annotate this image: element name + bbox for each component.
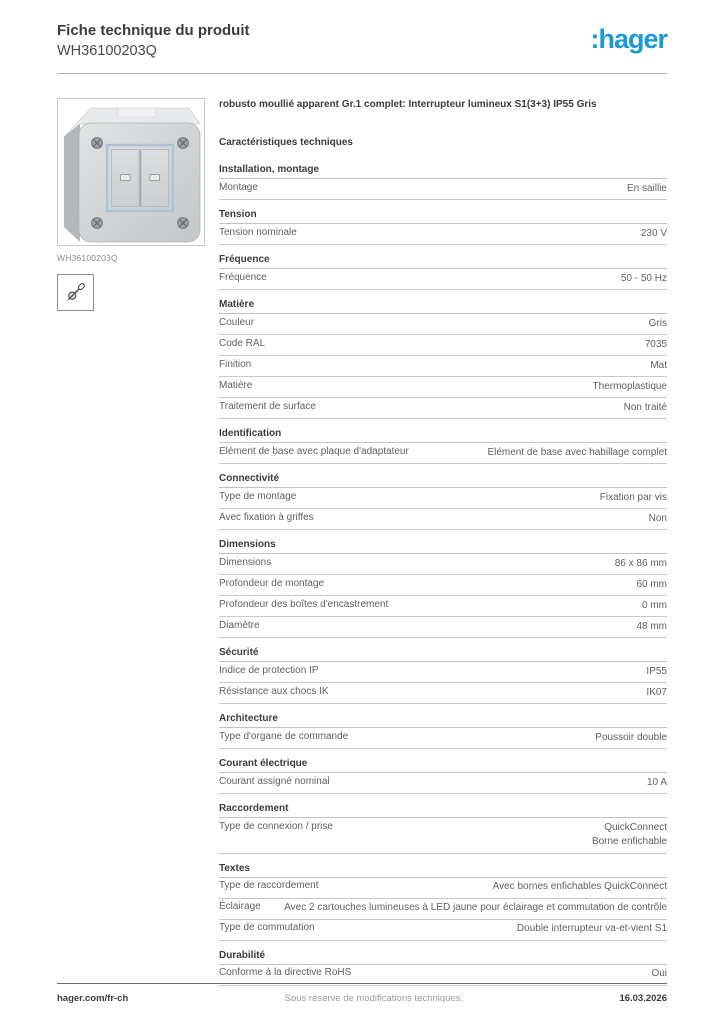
spec-row: Fréquence50 - 50 Hz: [219, 269, 667, 290]
spec-label: Résistance aux chocs IK: [219, 686, 341, 697]
spec-sections: Installation, montageMontageEn saillieTe…: [219, 164, 667, 986]
section-title: Textes: [219, 863, 667, 878]
specifications-column: robusto moullié apparent Gr.1 complet: I…: [219, 98, 667, 995]
section-title: Connectivité: [219, 473, 667, 488]
spec-row: MatièreThermoplastique: [219, 377, 667, 398]
spec-row: Profondeur de montage60 mm: [219, 575, 667, 596]
spec-row: Code RAL7035: [219, 335, 667, 356]
spec-value: IK07: [341, 686, 668, 701]
section-title: Courant électrique: [219, 758, 667, 773]
spec-row: Diamètre48 mm: [219, 617, 667, 638]
spec-row: Avec fixation à griffesNon: [219, 509, 667, 530]
spec-label: Elément de base avec plaque d'adaptateur: [219, 446, 421, 457]
spec-label: Montage: [219, 182, 270, 193]
spec-label: Type d'organe de commande: [219, 731, 360, 742]
spec-value: Poussoir double: [360, 731, 667, 746]
product-reference: WH36100203Q: [57, 43, 250, 59]
spec-row: Dimensions86 x 86 mm: [219, 554, 667, 575]
spec-label: Traitement de surface: [219, 401, 328, 412]
footer-date: 16.03.2026: [619, 993, 667, 1004]
page-title: Fiche technique du produit: [57, 22, 250, 41]
switch-illustration: [58, 99, 204, 245]
spec-section: Courant électriqueCourant assigné nomina…: [219, 758, 667, 794]
section-title: Raccordement: [219, 803, 667, 818]
screwdriver-icon: [62, 279, 89, 306]
spec-value: Mat: [263, 359, 667, 374]
spec-row: Indice de protection IPIP55: [219, 662, 667, 683]
spec-row: FinitionMat: [219, 356, 667, 377]
section-title: Fréquence: [219, 254, 667, 269]
spec-row: Profondeur des boîtes d'encastrement0 mm: [219, 596, 667, 617]
spec-row: Type de connexion / priseQuickConnect Bo…: [219, 818, 667, 854]
spec-label: Profondeur de montage: [219, 578, 336, 589]
spec-value: Avec bornes enfichables QuickConnect: [331, 880, 668, 895]
characteristics-heading: Caractéristiques techniques: [219, 137, 667, 148]
spec-section: DimensionsDimensions86 x 86 mmProfondeur…: [219, 539, 667, 638]
header-divider: [57, 73, 667, 74]
spec-section: FréquenceFréquence50 - 50 Hz: [219, 254, 667, 290]
product-description: robusto moullié apparent Gr.1 complet: I…: [219, 98, 667, 113]
spec-value: Double interrupteur va-et-vient S1: [327, 922, 667, 937]
header-titles: Fiche technique du produit WH36100203Q: [57, 22, 250, 59]
spec-row: CouleurGris: [219, 314, 667, 335]
spec-label: Finition: [219, 359, 263, 370]
spec-value: QuickConnect Borne enfichable: [345, 821, 667, 850]
section-title: Matière: [219, 299, 667, 314]
spec-row: Type de montageFixation par vis: [219, 488, 667, 509]
spec-section: DurabilitéConforme à la directive RoHSOu…: [219, 950, 667, 986]
spec-section: ConnectivitéType de montageFixation par …: [219, 473, 667, 530]
spec-row: Type d'organe de commandePoussoir double: [219, 728, 667, 749]
spec-label: Tension nominale: [219, 227, 309, 238]
spec-row: Type de commutationDouble interrupteur v…: [219, 920, 667, 941]
section-title: Dimensions: [219, 539, 667, 554]
spec-value: 10 A: [342, 776, 667, 791]
section-title: Sécurité: [219, 647, 667, 662]
spec-section: IdentificationElément de base avec plaqu…: [219, 428, 667, 464]
spec-value: 50 - 50 Hz: [279, 272, 667, 287]
left-column: WH36100203Q: [57, 98, 205, 995]
spec-section: ArchitectureType d'organe de commandePou…: [219, 713, 667, 749]
spec-value: Avec 2 cartouches lumineuses à LED jaune…: [273, 901, 667, 916]
section-title: Architecture: [219, 713, 667, 728]
section-title: Installation, montage: [219, 164, 667, 179]
spec-row: Elément de base avec plaque d'adaptateur…: [219, 443, 667, 464]
footer-website: hager.com/fr-ch: [57, 993, 128, 1004]
footer-disclaimer: Sous réserve de modifications techniques…: [285, 993, 464, 1004]
spec-label: Type de connexion / prise: [219, 821, 345, 832]
spec-value: Gris: [266, 317, 667, 332]
spec-value: IP55: [331, 665, 667, 680]
spec-label: Dimensions: [219, 557, 283, 568]
image-caption: WH36100203Q: [57, 253, 205, 263]
spec-value: 0 mm: [400, 599, 667, 614]
spec-label: Diamètre: [219, 620, 272, 631]
spec-row: Tension nominale230 V: [219, 224, 667, 245]
spec-row: MontageEn saillie: [219, 179, 667, 200]
spec-section: MatièreCouleurGrisCode RAL7035FinitionMa…: [219, 299, 667, 419]
spec-label: Type de raccordement: [219, 880, 331, 891]
spec-label: Courant assigné nominal: [219, 776, 342, 787]
spec-value: Thermoplastique: [264, 380, 667, 395]
spec-section: TensionTension nominale230 V: [219, 209, 667, 245]
spec-label: Conforme à la directive RoHS: [219, 967, 363, 978]
spec-value: 48 mm: [272, 620, 667, 635]
datasheet-page: Fiche technique du produit WH36100203Q :…: [0, 0, 724, 1024]
header: Fiche technique du produit WH36100203Q :…: [57, 22, 667, 59]
spec-value: Oui: [363, 967, 667, 982]
spec-row: Traitement de surfaceNon traité: [219, 398, 667, 419]
spec-label: Indice de protection IP: [219, 665, 331, 676]
spec-label: Code RAL: [219, 338, 277, 349]
spec-section: Installation, montageMontageEn saillie: [219, 164, 667, 200]
spec-value: Non traité: [328, 401, 667, 416]
section-title: Durabilité: [219, 950, 667, 965]
spec-value: Non: [326, 512, 667, 527]
spec-label: Fréquence: [219, 272, 279, 283]
spec-label: Couleur: [219, 317, 266, 328]
spec-section: TextesType de raccordementAvec bornes en…: [219, 863, 667, 941]
spec-row: Résistance aux chocs IKIK07: [219, 683, 667, 704]
spec-value: Elément de base avec habillage complet: [421, 446, 667, 461]
spec-value: En saillie: [270, 182, 667, 197]
spec-label: Type de commutation: [219, 922, 327, 933]
product-image: [57, 98, 205, 246]
spec-value: 7035: [277, 338, 667, 353]
section-title: Identification: [219, 428, 667, 443]
section-title: Tension: [219, 209, 667, 224]
spec-section: RaccordementType de connexion / priseQui…: [219, 803, 667, 854]
content: WH36100203Q robusto moullié apparent Gr.…: [57, 98, 667, 995]
hager-logo: :hager: [590, 24, 667, 55]
footer: hager.com/fr-ch Sous réserve de modifica…: [57, 983, 667, 1004]
spec-label: Éclairage: [219, 901, 273, 912]
spec-row: Courant assigné nominal10 A: [219, 773, 667, 794]
spec-value: 60 mm: [336, 578, 667, 593]
screw-fixing-icon: [57, 274, 94, 311]
spec-label: Avec fixation à griffes: [219, 512, 326, 523]
spec-label: Type de montage: [219, 491, 308, 502]
spec-label: Matière: [219, 380, 264, 391]
spec-row: ÉclairageAvec 2 cartouches lumineuses à …: [219, 899, 667, 920]
spec-row: Type de raccordementAvec bornes enfichab…: [219, 878, 667, 899]
spec-value: Fixation par vis: [308, 491, 667, 506]
spec-value: 230 V: [309, 227, 667, 242]
spec-value: 86 x 86 mm: [283, 557, 667, 572]
spec-section: SécuritéIndice de protection IPIP55Résis…: [219, 647, 667, 704]
spec-label: Profondeur des boîtes d'encastrement: [219, 599, 400, 610]
